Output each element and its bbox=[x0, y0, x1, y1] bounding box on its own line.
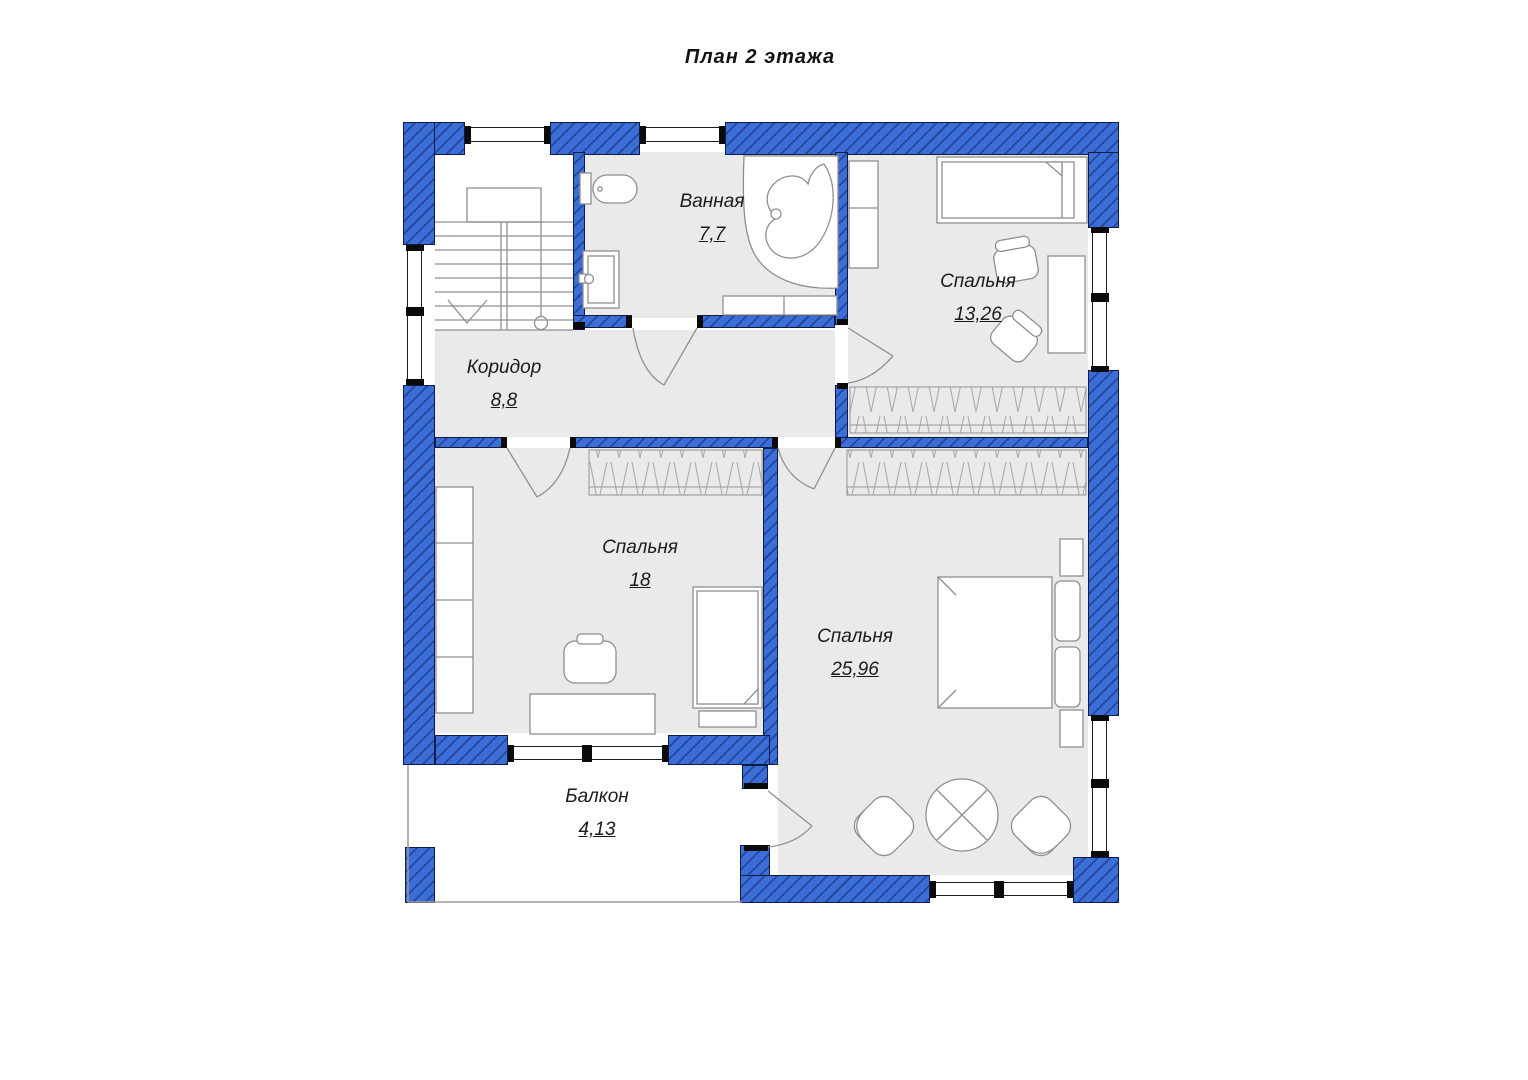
door-arc bbox=[778, 448, 835, 489]
room-label-bedroom-small: Спальня 13,26 bbox=[940, 272, 1016, 324]
door-arc bbox=[848, 328, 893, 383]
pillow-icon bbox=[1055, 581, 1080, 641]
room-label-bathroom: Ванная 7,7 bbox=[680, 192, 745, 244]
double-bed-icon bbox=[938, 577, 1080, 708]
closet-icon bbox=[850, 387, 1086, 433]
pillow-icon bbox=[1055, 647, 1080, 707]
desk-icon bbox=[530, 694, 655, 734]
desk-icon bbox=[1048, 256, 1085, 353]
shelf-cabinet-icon bbox=[849, 161, 878, 268]
sink-icon bbox=[579, 251, 619, 308]
closet-icon bbox=[847, 450, 1086, 495]
door-arc bbox=[768, 791, 812, 847]
room-label-corridor: Коридор 8,8 bbox=[467, 358, 542, 410]
armchair-icon bbox=[1006, 791, 1077, 862]
toilet-icon bbox=[580, 173, 637, 204]
room-label-balcony: Балкон 4,13 bbox=[565, 787, 628, 839]
nightstand-icon bbox=[1060, 539, 1083, 747]
bath-cabinet-icon bbox=[723, 296, 837, 315]
stairs-icon bbox=[435, 188, 573, 330]
symbols-layer bbox=[0, 0, 1528, 1080]
room-label-bedroom-left: Спальня 18 bbox=[602, 538, 678, 590]
chair-icon bbox=[564, 634, 616, 683]
wardrobe-icon bbox=[436, 487, 473, 713]
bathtub-icon bbox=[743, 156, 838, 288]
armchair-icon bbox=[849, 791, 920, 862]
round-table-icon bbox=[926, 779, 998, 851]
door-arc bbox=[633, 328, 697, 385]
room-label-bedroom-master: Спальня 25,96 bbox=[817, 627, 893, 679]
door-arc bbox=[507, 448, 570, 497]
closet-icon bbox=[589, 450, 762, 495]
single-bed-icon bbox=[693, 587, 762, 727]
floor-plan: План 2 этажа bbox=[0, 0, 1528, 1080]
single-bed-icon bbox=[937, 157, 1087, 223]
